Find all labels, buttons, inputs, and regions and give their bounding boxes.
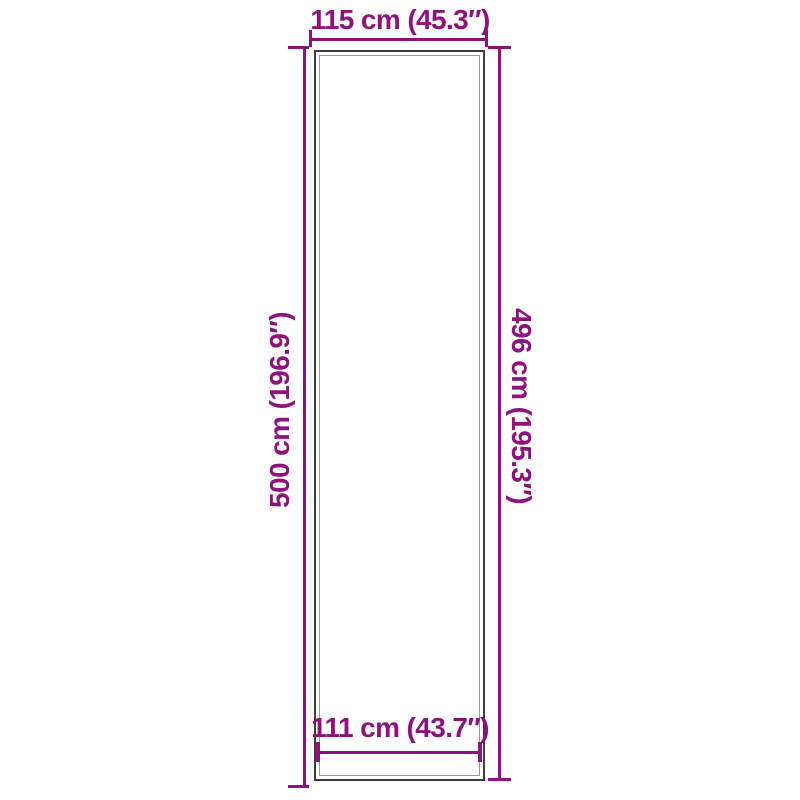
bottom-dimension-line [319,751,480,754]
bottom-dimension-left-tick [316,742,320,762]
outer-width-label: 115 cm (45.3″) [310,6,489,34]
rug-inner-edge [319,55,480,776]
rug-outline [314,50,485,781]
left-dimension-bottom-tick [288,785,309,788]
bottom-dimension-right-tick [478,742,482,762]
left-dimension-top-tick [288,46,309,49]
top-dimension-line [309,38,488,41]
outer-length-label: 500 cm (196.9″) [266,312,294,508]
dimension-diagram: 115 cm (45.3″) 500 cm (196.9″) 496 cm (1… [0,0,800,800]
inner-width-label: 111 cm (43.7″) [311,714,489,742]
left-dimension-line [303,46,306,788]
inner-length-label: 496 cm (195.3″) [507,308,535,504]
right-dimension-bottom-tick [488,778,511,781]
top-dimension-right-tick [485,30,488,47]
right-dimension-line [498,46,501,781]
top-dimension-left-tick [309,30,312,47]
right-dimension-top-tick [488,46,511,49]
